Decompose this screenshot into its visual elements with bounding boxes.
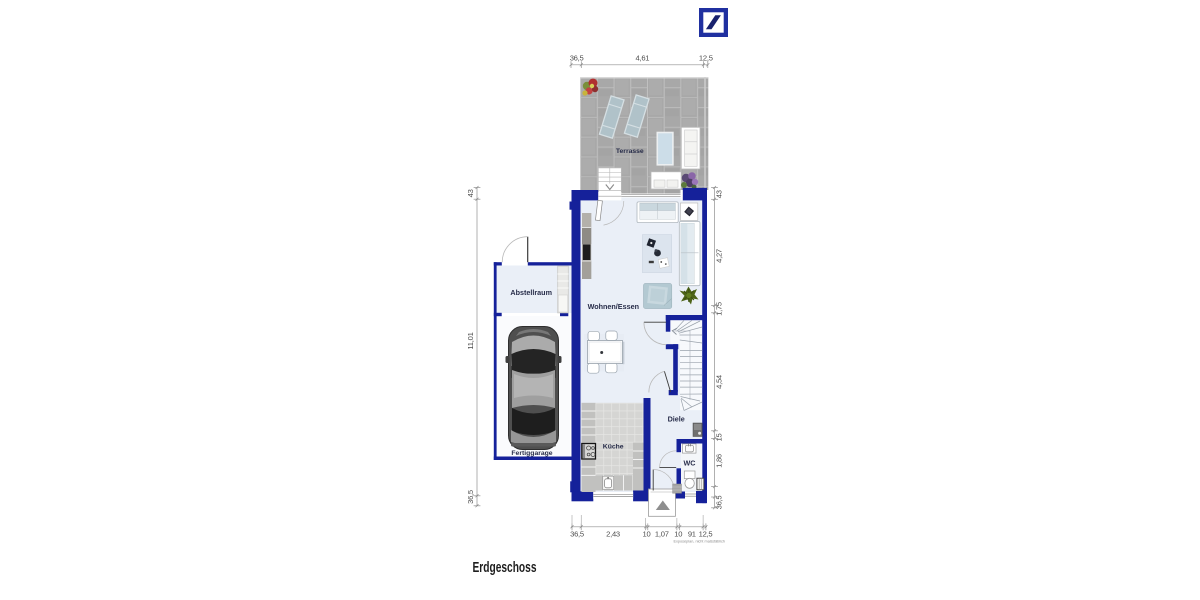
svg-text:WC: WC [684,459,696,468]
svg-text:36,5: 36,5 [570,530,584,539]
svg-text:43: 43 [715,190,724,198]
svg-text:15: 15 [715,434,724,442]
svg-text:36,5: 36,5 [466,490,475,504]
svg-text:Exposéplan, nicht maßstäblich: Exposéplan, nicht maßstäblich [674,540,726,544]
svg-text:43: 43 [466,189,475,197]
svg-text:10: 10 [674,530,682,539]
svg-text:12,5: 12,5 [699,530,713,539]
svg-text:10: 10 [643,530,651,539]
svg-text:11,01: 11,01 [466,332,475,349]
svg-text:Terrasse: Terrasse [616,148,644,155]
svg-text:4,54: 4,54 [715,375,724,389]
svg-text:36,5: 36,5 [570,54,584,63]
svg-text:36,5: 36,5 [715,496,724,510]
svg-text:Abstellraum: Abstellraum [510,288,552,297]
svg-text:1,75: 1,75 [715,302,724,316]
svg-text:1,07: 1,07 [655,530,669,539]
svg-text:4,61: 4,61 [636,54,650,63]
svg-text:1,86: 1,86 [715,454,724,468]
svg-text:Küche: Küche [603,444,624,451]
svg-text:12,5: 12,5 [699,54,713,63]
svg-text:Diele: Diele [668,415,685,424]
svg-text:Fertiggarage: Fertiggarage [511,450,552,457]
svg-text:Erdgeschoss: Erdgeschoss [473,560,537,576]
svg-text:91: 91 [688,530,696,539]
svg-text:Wohnen/Essen: Wohnen/Essen [588,302,639,311]
svg-text:4,27: 4,27 [715,249,724,263]
svg-text:2,43: 2,43 [606,530,620,539]
